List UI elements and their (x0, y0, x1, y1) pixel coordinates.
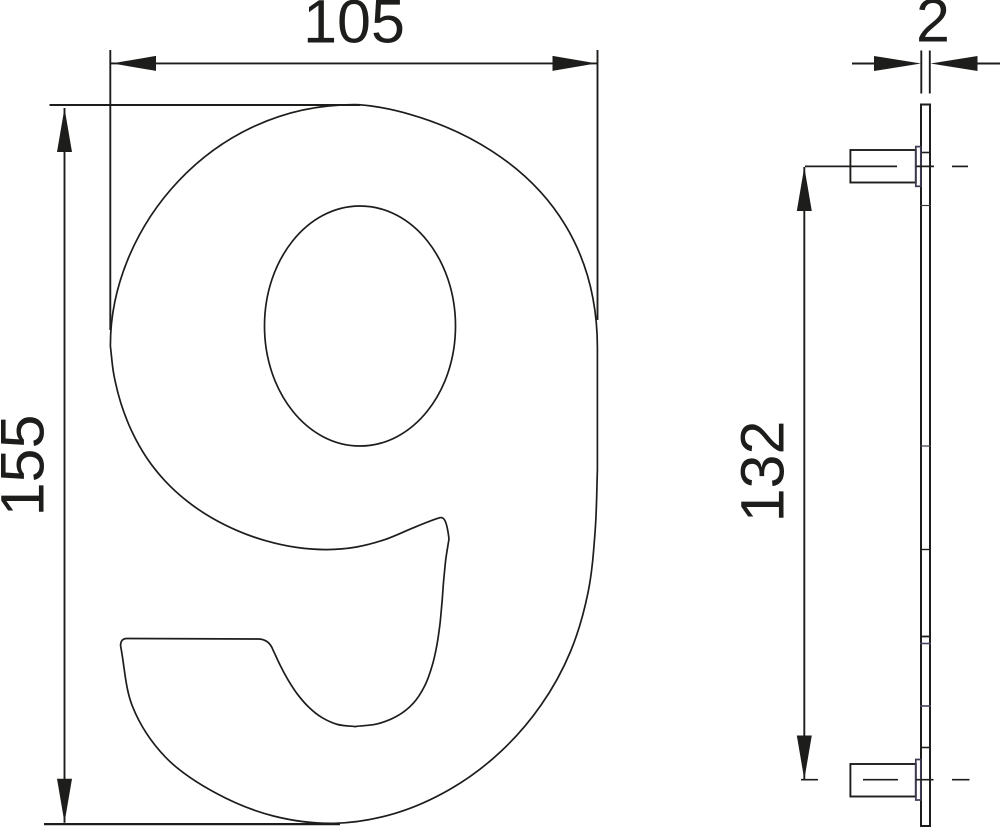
svg-text:132: 132 (729, 421, 797, 523)
svg-text:2: 2 (916, 0, 950, 55)
svg-text:105: 105 (303, 0, 405, 56)
svg-text:155: 155 (0, 415, 57, 517)
